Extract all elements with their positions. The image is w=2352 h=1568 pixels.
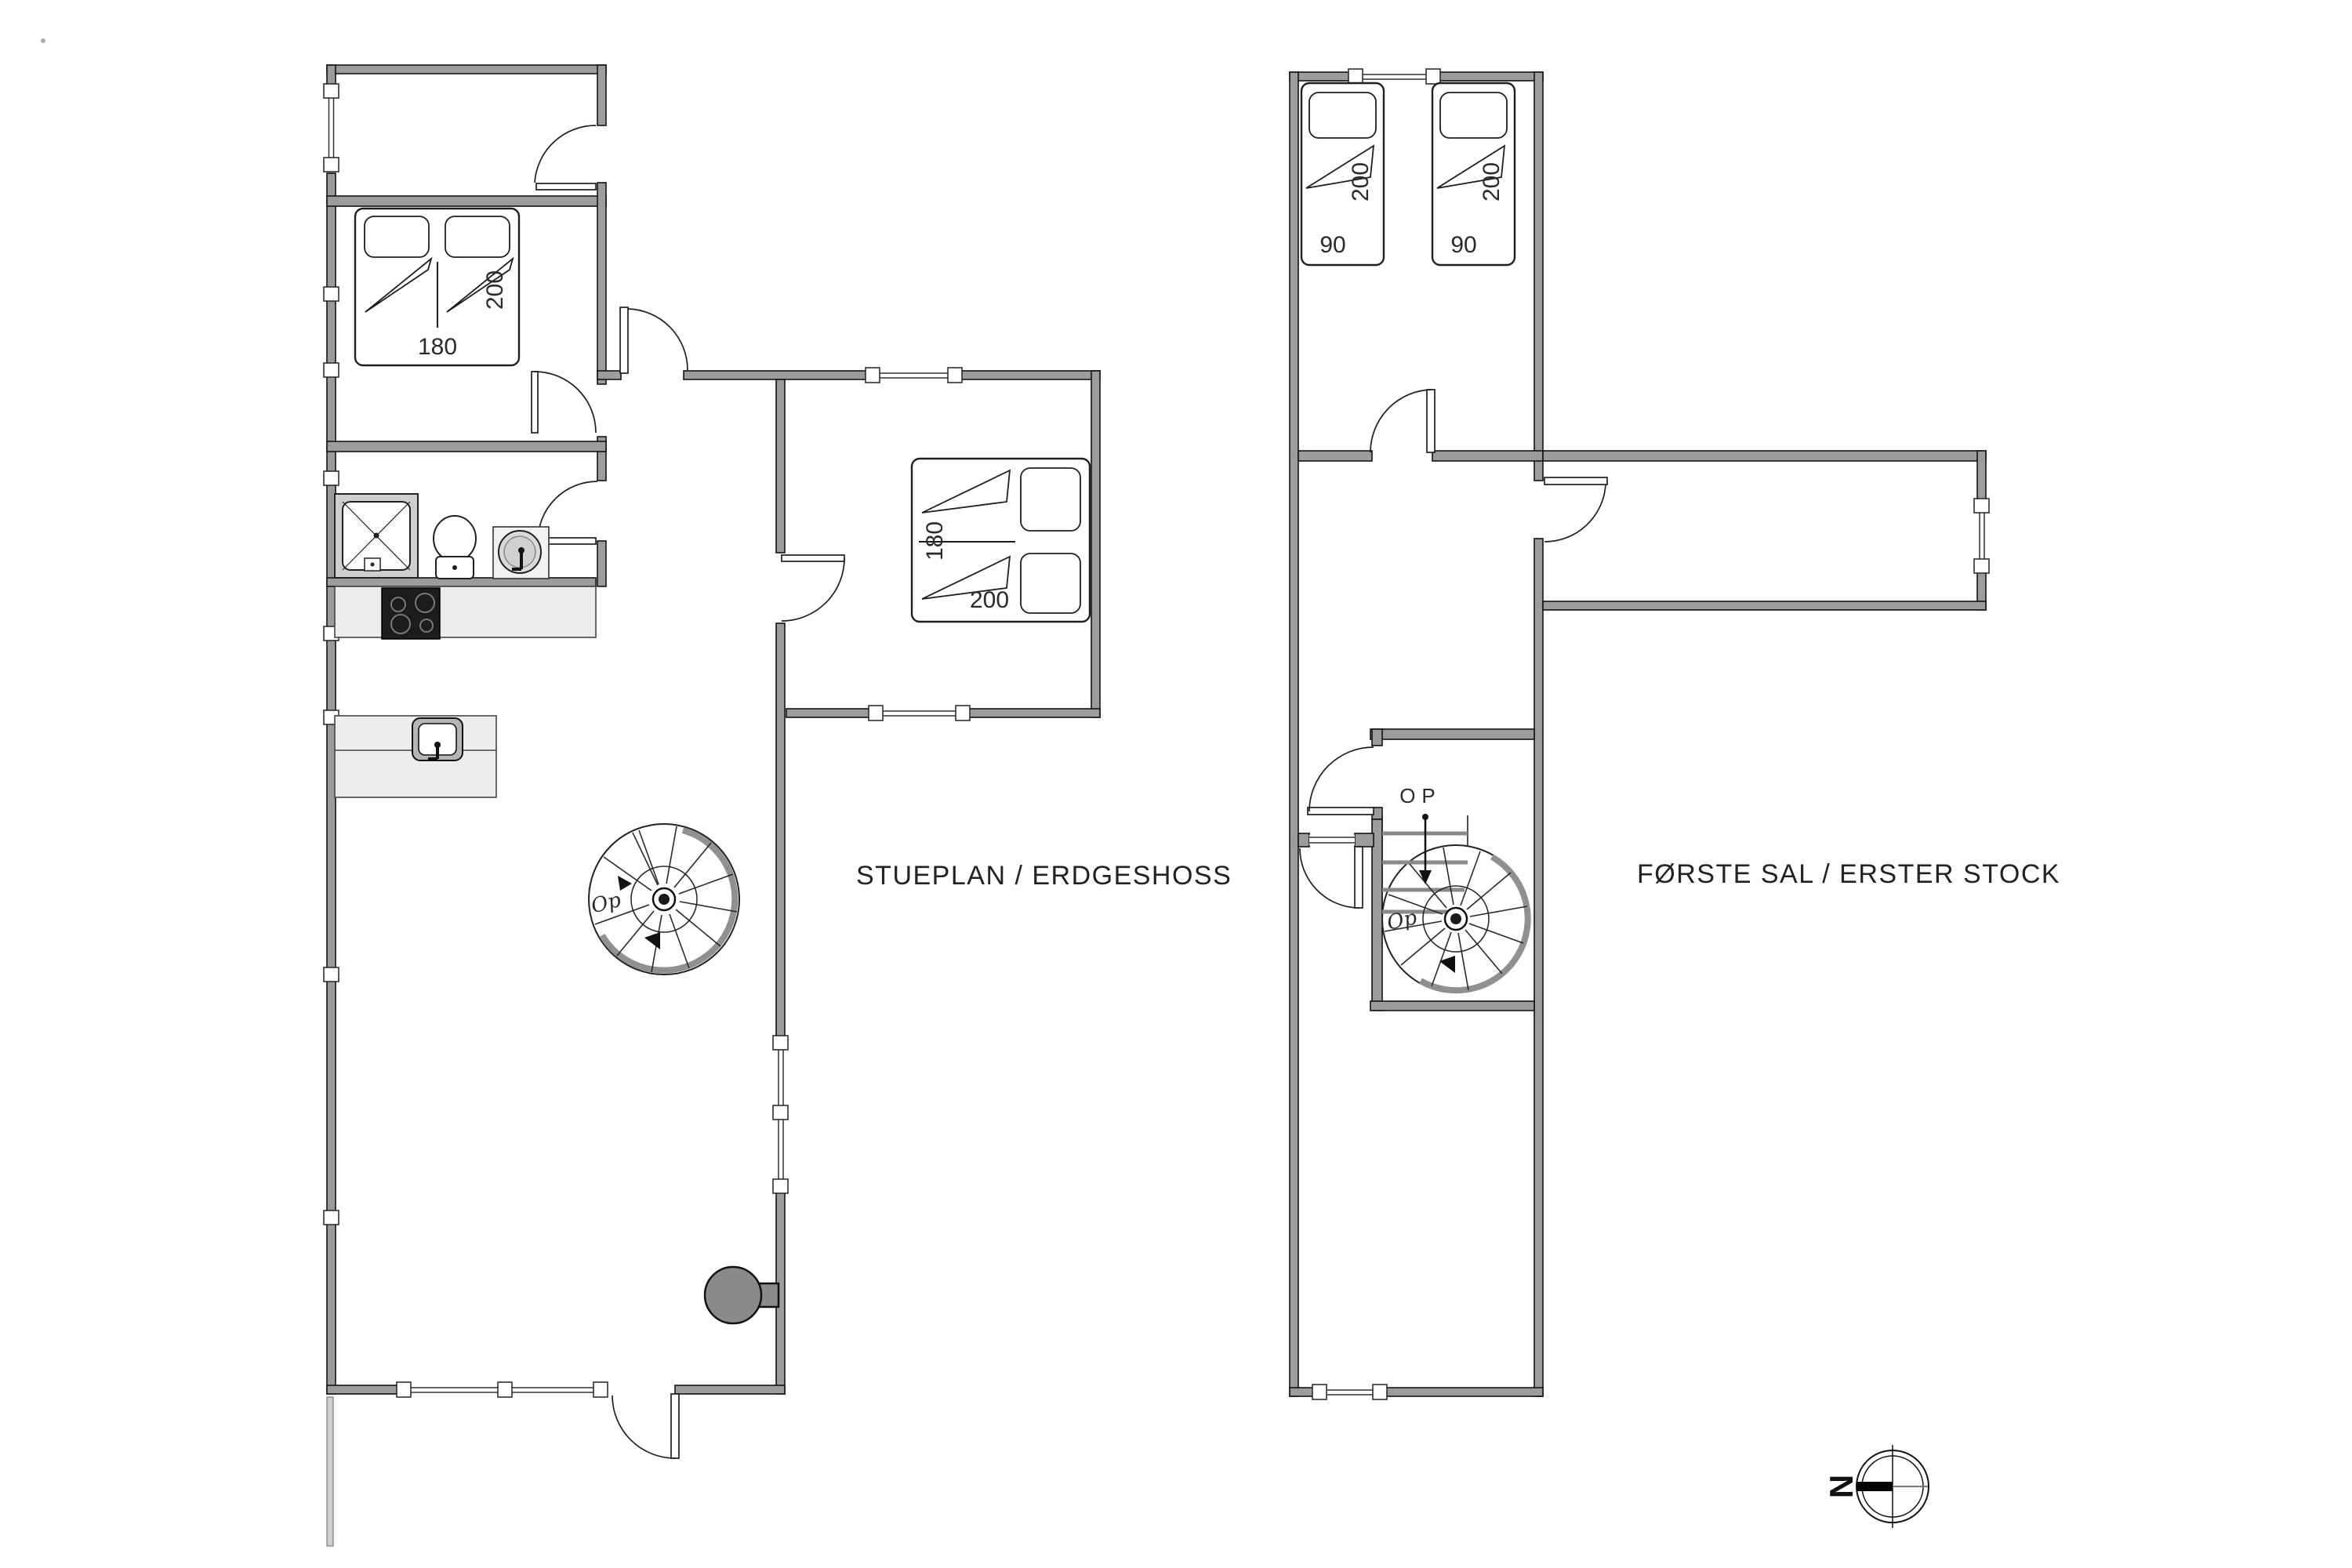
compass-rose: N: [1823, 1445, 1929, 1528]
hall-door-swing: [1300, 848, 1359, 908]
stove-body: [705, 1267, 761, 1323]
kitchen-counter: [335, 586, 596, 637]
bed-length-label: 200: [1479, 162, 1504, 201]
single-bed-left: 200 90: [1301, 83, 1384, 265]
double-bed-east: 180 200: [912, 459, 1090, 622]
window-icon: [498, 1382, 512, 1397]
ground-floor-title: STUEPLAN / ERDGESHOSS: [856, 861, 1232, 891]
window-icon: [324, 158, 339, 172]
window-icon: [324, 1210, 339, 1225]
ground-floor-plan: 180 200: [324, 65, 1232, 1546]
pillow: [365, 216, 429, 257]
pillow: [1021, 468, 1080, 531]
terrace-door-swing: [612, 1396, 675, 1458]
first-doors: [1300, 390, 1607, 908]
floorplan-document: 180 200: [0, 0, 2352, 1568]
window-icon: [1426, 69, 1440, 84]
ground-doors: [532, 125, 844, 1458]
first-floor-title: FØRSTE SAL / ERSTER STOCK: [1637, 859, 2060, 889]
stairs-direction-label: OP: [1399, 784, 1442, 808]
bed-width-label: 90: [1450, 232, 1476, 258]
spiral-staircase-first: OP Op: [1382, 784, 1530, 993]
wing-door-swing: [1544, 485, 1606, 542]
window-icon: [324, 287, 339, 301]
bedroom-door-leaf: [1427, 390, 1435, 452]
pillow: [1021, 554, 1080, 613]
bed-width-label: 180: [922, 521, 948, 561]
window-icon: [866, 368, 880, 383]
pillow: [1309, 93, 1376, 138]
window-icon: [948, 368, 962, 383]
toilet-bowl: [434, 516, 476, 561]
spiral-staircase-ground: Op: [589, 824, 739, 975]
first-floor-plan: 200 90 200 90: [1290, 69, 2060, 1399]
bed-length-label: 200: [970, 587, 1009, 613]
window-icon: [1974, 499, 1989, 513]
wing-door-leaf: [1544, 477, 1607, 485]
bathroom: [335, 494, 549, 579]
terrace-door-leaf: [671, 1394, 679, 1458]
kitchen: [335, 586, 596, 797]
pillow: [1440, 93, 1507, 138]
window-icon: [1348, 69, 1363, 84]
door-swing: [535, 125, 596, 183]
hall-door-leaf: [1355, 847, 1363, 908]
entrance-door-leaf: [620, 307, 628, 373]
window-icon: [956, 706, 970, 720]
north-label: N: [1823, 1475, 1860, 1498]
window-icon: [1974, 559, 1989, 573]
window-icon: [397, 1382, 411, 1397]
pillow: [445, 216, 510, 257]
window-icon: [1312, 1385, 1327, 1399]
door-swing: [782, 558, 844, 621]
bed-width-label: 90: [1319, 232, 1345, 258]
double-bed-nw: 180 200: [355, 209, 519, 365]
first-walls: [1290, 72, 1986, 1396]
wood-stove: [705, 1267, 779, 1323]
site-boundary-line: [327, 1397, 333, 1546]
artifact-dot: [41, 38, 45, 43]
floorplan-drawing: 180 200: [0, 0, 2352, 1568]
bed-length-label: 200: [482, 270, 508, 310]
door-leaf: [536, 183, 596, 190]
north-pointer-icon: [1857, 1482, 1893, 1491]
window-icon: [324, 84, 339, 98]
window-icon: [773, 1105, 788, 1120]
window-icon: [773, 1036, 788, 1050]
stair-room-door-swing: [1309, 747, 1374, 811]
entrance-door-swing: [628, 309, 688, 370]
door-leaf: [782, 555, 844, 561]
window-icon: [324, 471, 339, 485]
single-bed-right: 200 90: [1432, 83, 1515, 265]
door-swing: [535, 372, 596, 433]
window-icon: [593, 1382, 608, 1397]
bed-length-label: 200: [1348, 162, 1374, 201]
window-icon: [1373, 1385, 1387, 1399]
window-icon: [869, 706, 883, 720]
bedroom-door-swing: [1370, 390, 1432, 452]
door-leaf: [532, 372, 538, 433]
stair-room-door-leaf: [1308, 808, 1374, 815]
window-icon: [324, 967, 339, 982]
window-icon: [324, 363, 339, 377]
window-icon: [773, 1179, 788, 1193]
bed-width-label: 180: [418, 334, 457, 360]
